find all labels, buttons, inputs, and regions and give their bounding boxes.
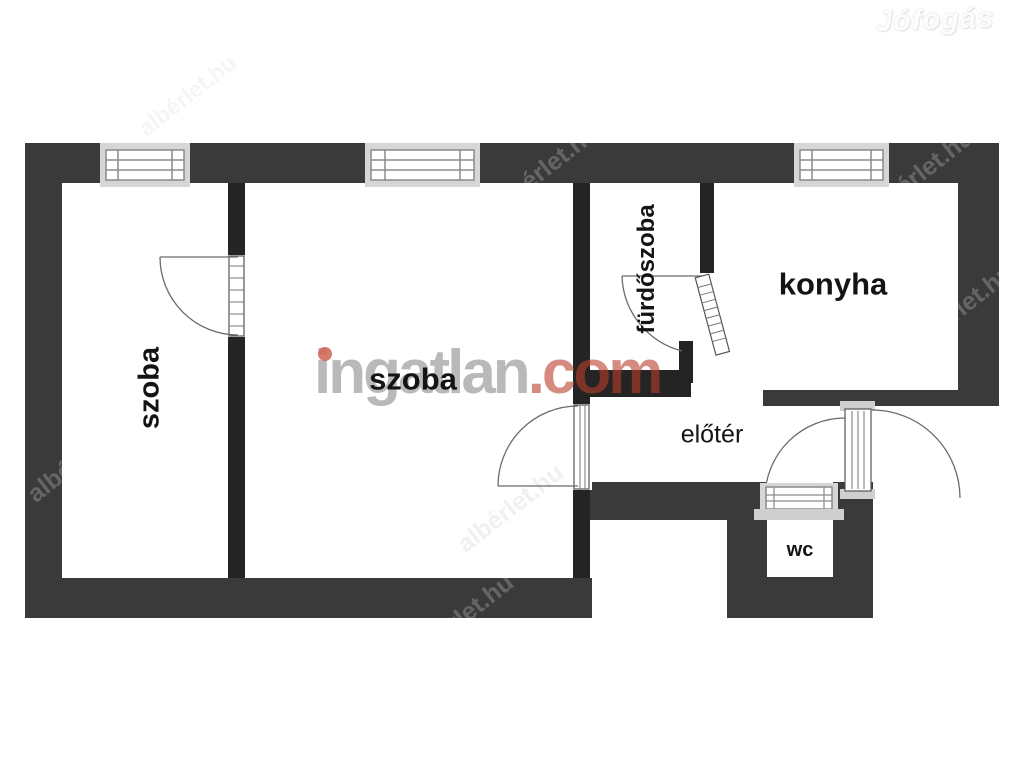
brand-dot-icon bbox=[318, 347, 332, 361]
jofogas-logo: Jófogás bbox=[875, 2, 994, 39]
wall-divider1-upper bbox=[228, 183, 245, 255]
wall-bottom bbox=[25, 578, 592, 618]
wall-right bbox=[958, 143, 999, 406]
door-middle-room bbox=[498, 404, 592, 490]
door-bathroom bbox=[622, 274, 729, 355]
outer-walls bbox=[25, 143, 999, 618]
wall-divider1-lower bbox=[228, 337, 245, 578]
wall-kitchen-bottom bbox=[763, 390, 999, 406]
wall-bath-kitchen bbox=[700, 183, 714, 273]
window-left-room bbox=[100, 143, 190, 187]
door-left-room bbox=[160, 255, 247, 337]
floorplan-canvas: albérlet.hu albérlet.hu albérlet.hu albé… bbox=[0, 0, 1024, 761]
wall-wc-bottom bbox=[727, 577, 873, 618]
wall-bath-bottom bbox=[575, 370, 691, 397]
wall-divider2-lower bbox=[573, 490, 590, 578]
window-middle-room bbox=[365, 143, 480, 187]
door-wc bbox=[754, 483, 844, 520]
wall-left bbox=[25, 143, 62, 617]
window-kitchen bbox=[794, 143, 889, 187]
house-icon: ⌂ bbox=[86, 262, 114, 316]
floorplan-drawing bbox=[0, 0, 1024, 761]
